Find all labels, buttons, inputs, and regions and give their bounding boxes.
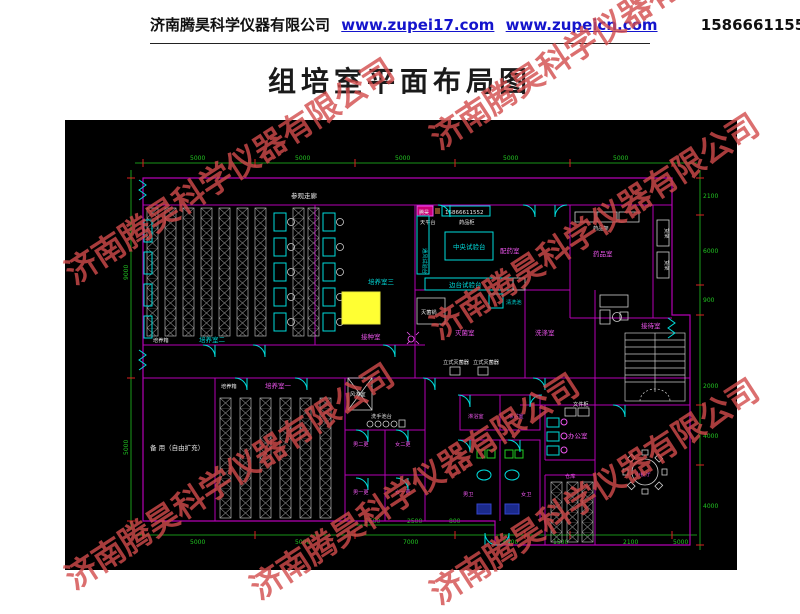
wash-sink-label: 清洗池 <box>506 298 522 306</box>
floor-plan-canvas: 5000 5000 5000 5000 5000 9000 5000 2100 … <box>65 120 737 570</box>
dim-bottom-3: 7000 <box>403 539 418 546</box>
room-label-dispensing: 配药室 <box>500 246 520 255</box>
logo-text: 腾昊 <box>419 209 429 216</box>
file-cabinet-label: 文件柜 <box>573 400 589 408</box>
phone-plate-text: 15866611552 <box>445 210 484 216</box>
side-bench-label: 边台试验台 <box>449 280 482 289</box>
dim-right-3: 900 <box>703 297 715 304</box>
room-label-storage: 仓库 <box>565 472 575 480</box>
dim-right-1: 2100 <box>703 193 718 200</box>
room-label-culture3: 培养室三 <box>368 277 395 286</box>
medicine-room-shelves: 药品架 货架 货架 <box>575 212 671 278</box>
room-label-dining: 小餐厅 <box>635 470 651 478</box>
page-title: 组培室平面布局图 <box>0 60 800 100</box>
company-name: 济南腾昊科学仪器有限公司 <box>150 16 330 34</box>
balance-table-label: 天平台 <box>420 218 436 226</box>
highlighted-room <box>342 292 380 324</box>
room-label-change-f2: 女二更 <box>395 440 411 448</box>
goods-shelf-label-1: 货架 <box>663 228 671 238</box>
dim-top-5: 5000 <box>613 155 628 162</box>
room-label-toilet-m: 男卫 <box>463 491 473 498</box>
room-label-inoculation: 接种室 <box>361 332 381 341</box>
air-shower: 风淋室 洗手池台 <box>348 378 405 427</box>
dim-right-5: 4000 <box>703 433 718 440</box>
dim-left-1: 9000 <box>123 265 130 280</box>
link-zupei17[interactable]: www.zupei17.com <box>341 16 494 34</box>
side-bench-end-box <box>513 278 525 290</box>
dim-bottom-1: 5000 <box>190 539 205 546</box>
goods-shelf-label-2: 货架 <box>663 260 671 270</box>
small-box <box>435 208 440 214</box>
header-bar: 济南腾昊科学仪器有限公司 www.zupei17.com www.zupeicn… <box>150 14 650 44</box>
room-label-change-m1: 男一更 <box>353 489 369 496</box>
room-label-culture2: 培养室二 <box>199 335 226 344</box>
room-label-reception: 接待室 <box>641 321 661 330</box>
dim-bottom-2: 5000 <box>295 539 310 546</box>
dim-top-1: 5000 <box>190 155 205 162</box>
room-label-culture1: 培养室一 <box>265 381 292 390</box>
room-label-shower-1: 淋浴室 <box>468 412 484 420</box>
dim-right-2: 6000 <box>703 248 718 255</box>
central-bench-label: 中央试验台 <box>453 242 486 251</box>
vert-sterilizer-label-1: 立式灭菌器 <box>443 358 470 366</box>
room-label-sterilization: 灭菌室 <box>455 328 475 337</box>
dim-left-2: 5000 <box>123 440 130 455</box>
room-label-office: 办公室 <box>568 431 588 440</box>
room-label-change-f1: 女一更 <box>395 488 411 496</box>
fume-bench-label: 通风试验台 <box>421 248 429 274</box>
equip-label-incubator-2: 培养箱 <box>221 382 237 390</box>
office-furniture: 文件柜 <box>547 400 589 455</box>
room-label-change-m2: 男二更 <box>353 441 369 448</box>
equip-label-incubator-1: 培养箱 <box>153 336 169 344</box>
staircase <box>625 333 685 401</box>
dim-top-4: 5000 <box>503 155 518 162</box>
hand-wash-label: 洗手池台 <box>371 412 392 420</box>
room-label-washing: 洗涤室 <box>535 328 555 337</box>
room-label-toilet-f: 女卫 <box>521 490 531 498</box>
vert-sterilizer-label-2: 立式灭菌器 <box>473 358 500 366</box>
room-label-spare: 备 用（自由扩充） <box>150 443 204 452</box>
dim-top-3: 5000 <box>395 155 410 162</box>
air-shower-label: 风淋室 <box>350 390 366 398</box>
wash-sink <box>489 294 503 308</box>
room-label-corridor: 参观走廊 <box>291 191 318 200</box>
autoclave-label: 灭菌锅 <box>421 308 437 316</box>
floor-drain-symbol <box>407 332 419 344</box>
reception-desk <box>600 295 628 324</box>
phone-number: 15866611552 <box>701 16 800 34</box>
link-zupeicn[interactable]: www.zupeicn.com <box>506 16 658 34</box>
medicine-cabinet-label: 药品柜 <box>459 218 475 226</box>
dim-right-4: 2000 <box>703 383 718 390</box>
dim-right-6: 4000 <box>703 503 718 510</box>
medicine-shelf-label: 药品架 <box>593 224 609 232</box>
floor-plan-drawing: 5000 5000 5000 5000 5000 9000 5000 2100 … <box>65 120 737 570</box>
room-label-shower-2: 淋浴室 <box>508 412 524 420</box>
room-label-medicine: 药品室 <box>593 249 613 258</box>
dim-top-2: 5000 <box>295 155 310 162</box>
